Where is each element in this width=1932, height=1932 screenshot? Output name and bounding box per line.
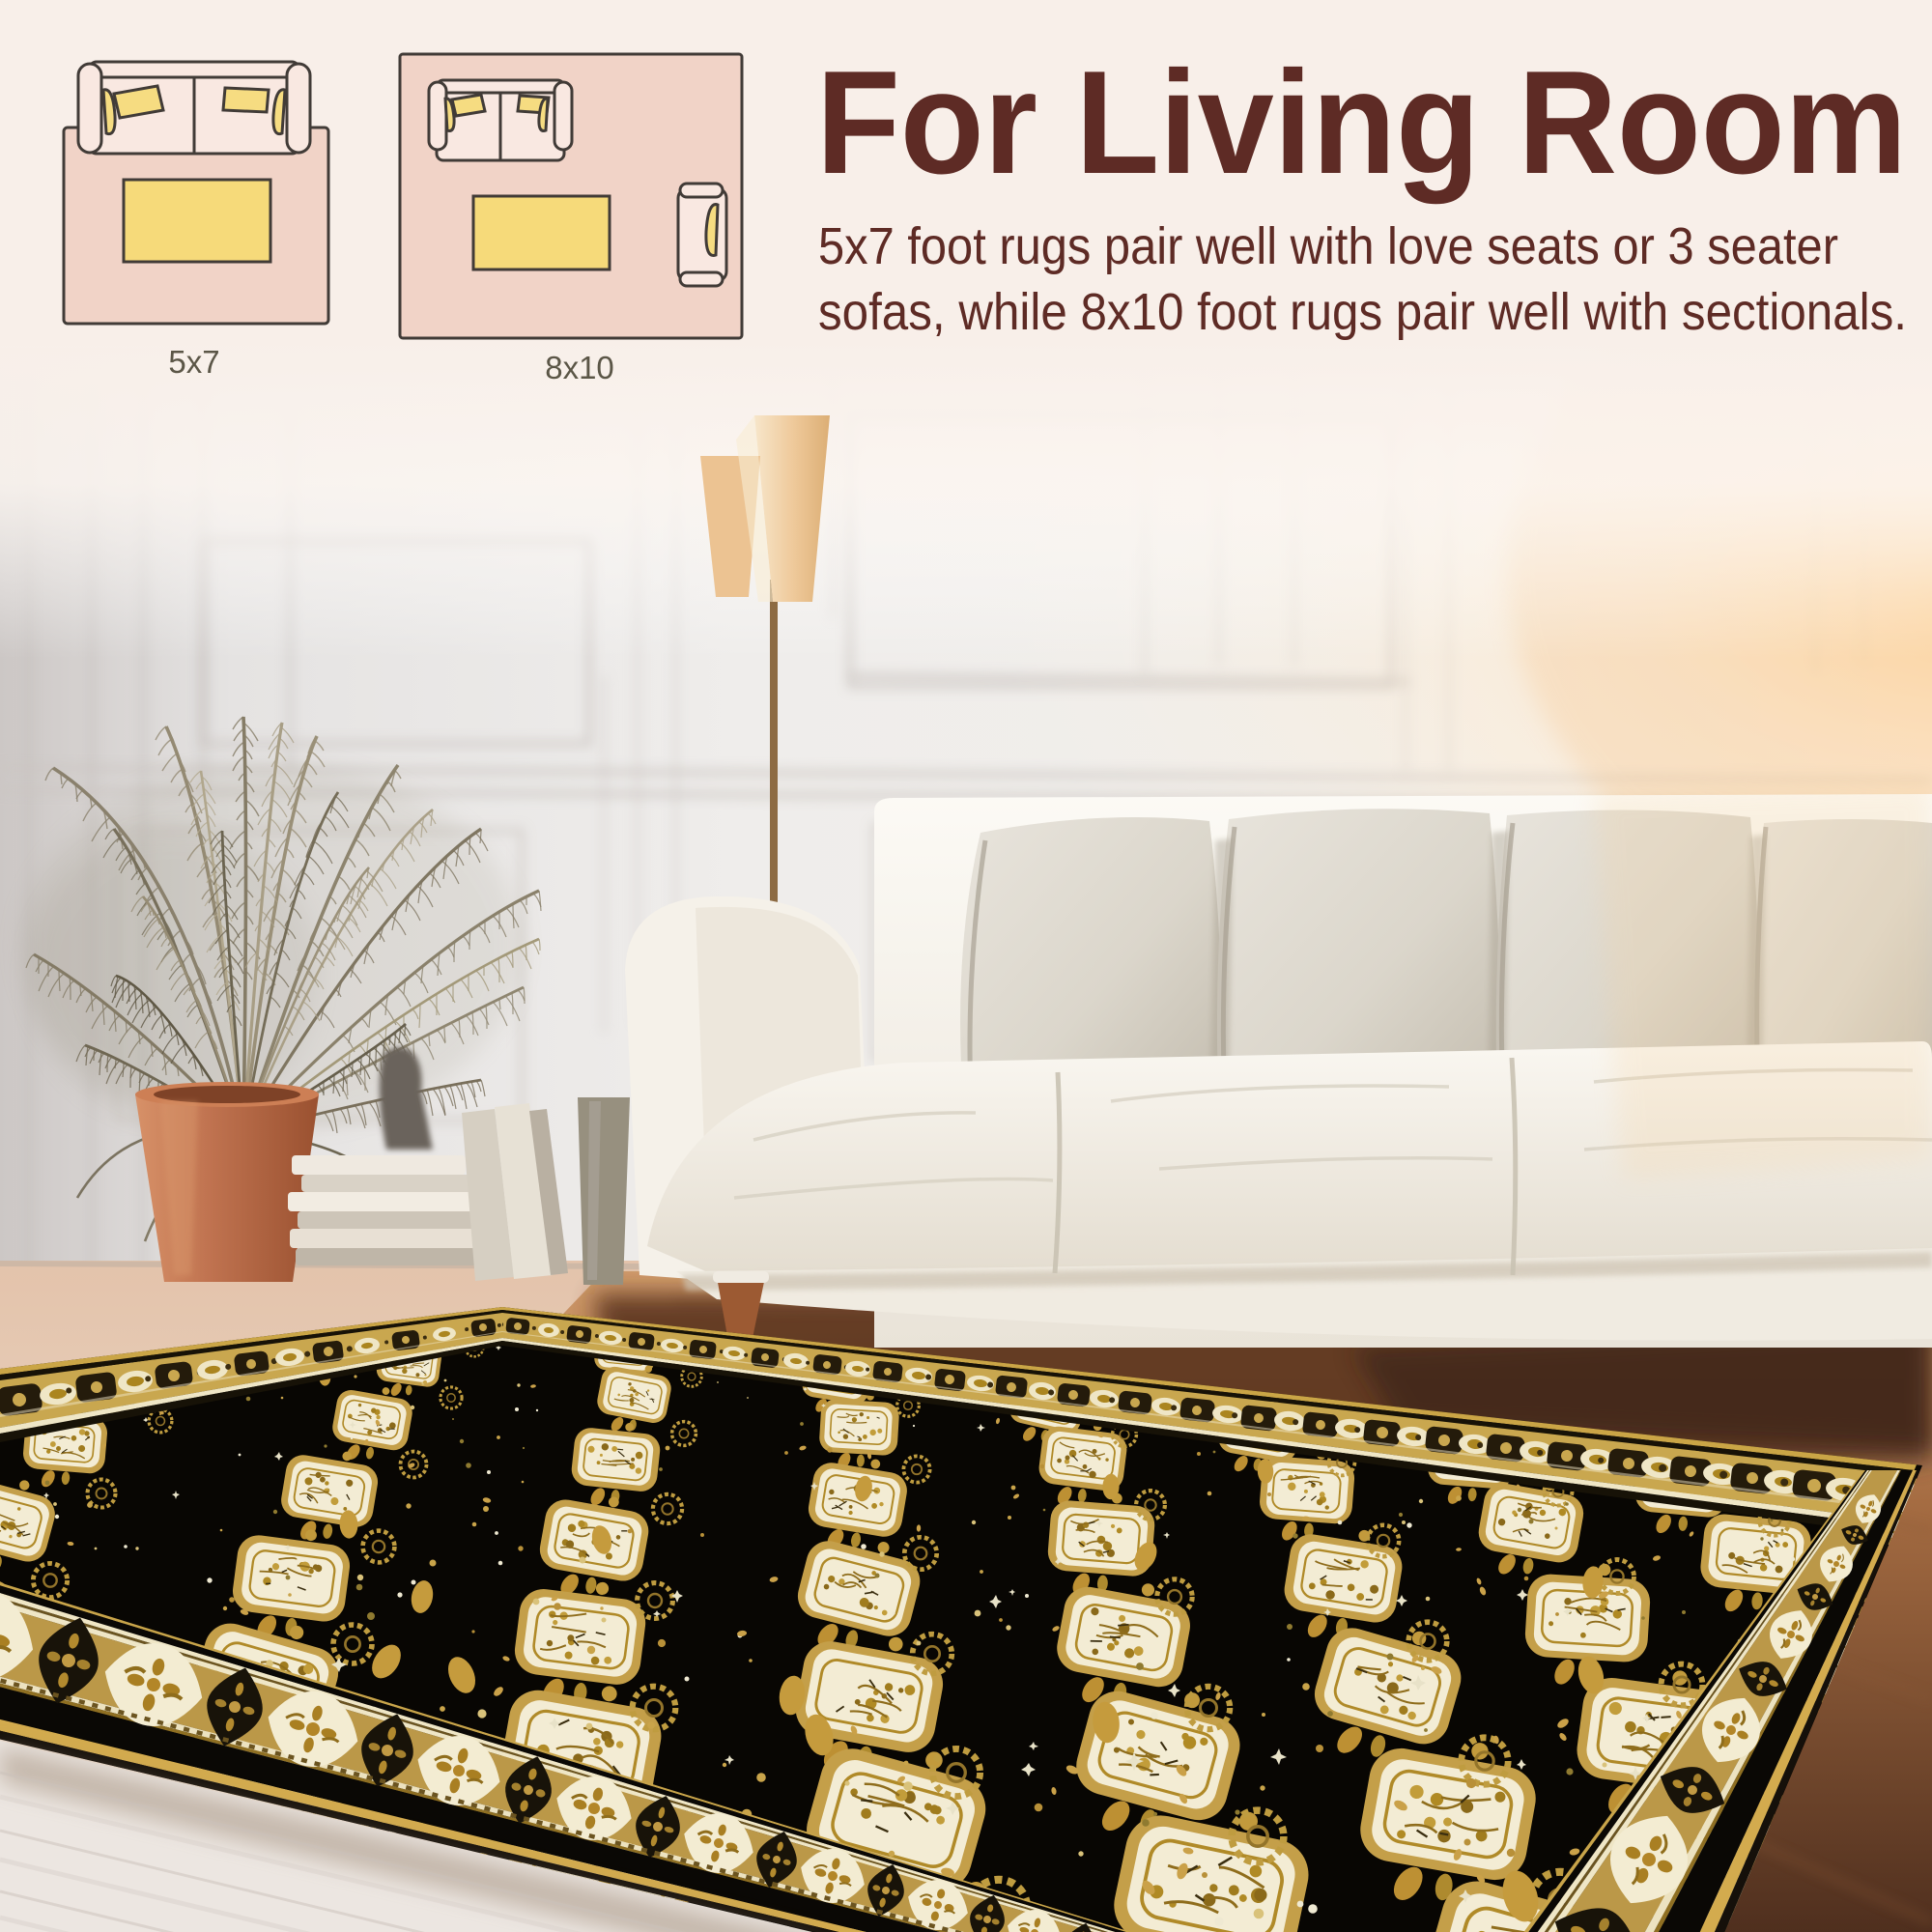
svg-text:5x7 foot rugs pair well with l: 5x7 foot rugs pair well with love seats … bbox=[818, 217, 1838, 275]
svg-text:sofas, while 8x10 foot rugs pa: sofas, while 8x10 foot rugs pair well wi… bbox=[818, 283, 1907, 341]
svg-text:For Living Room: For Living Room bbox=[816, 41, 1907, 205]
svg-text:5x7: 5x7 bbox=[168, 344, 219, 380]
svg-text:8x10: 8x10 bbox=[545, 350, 614, 385]
